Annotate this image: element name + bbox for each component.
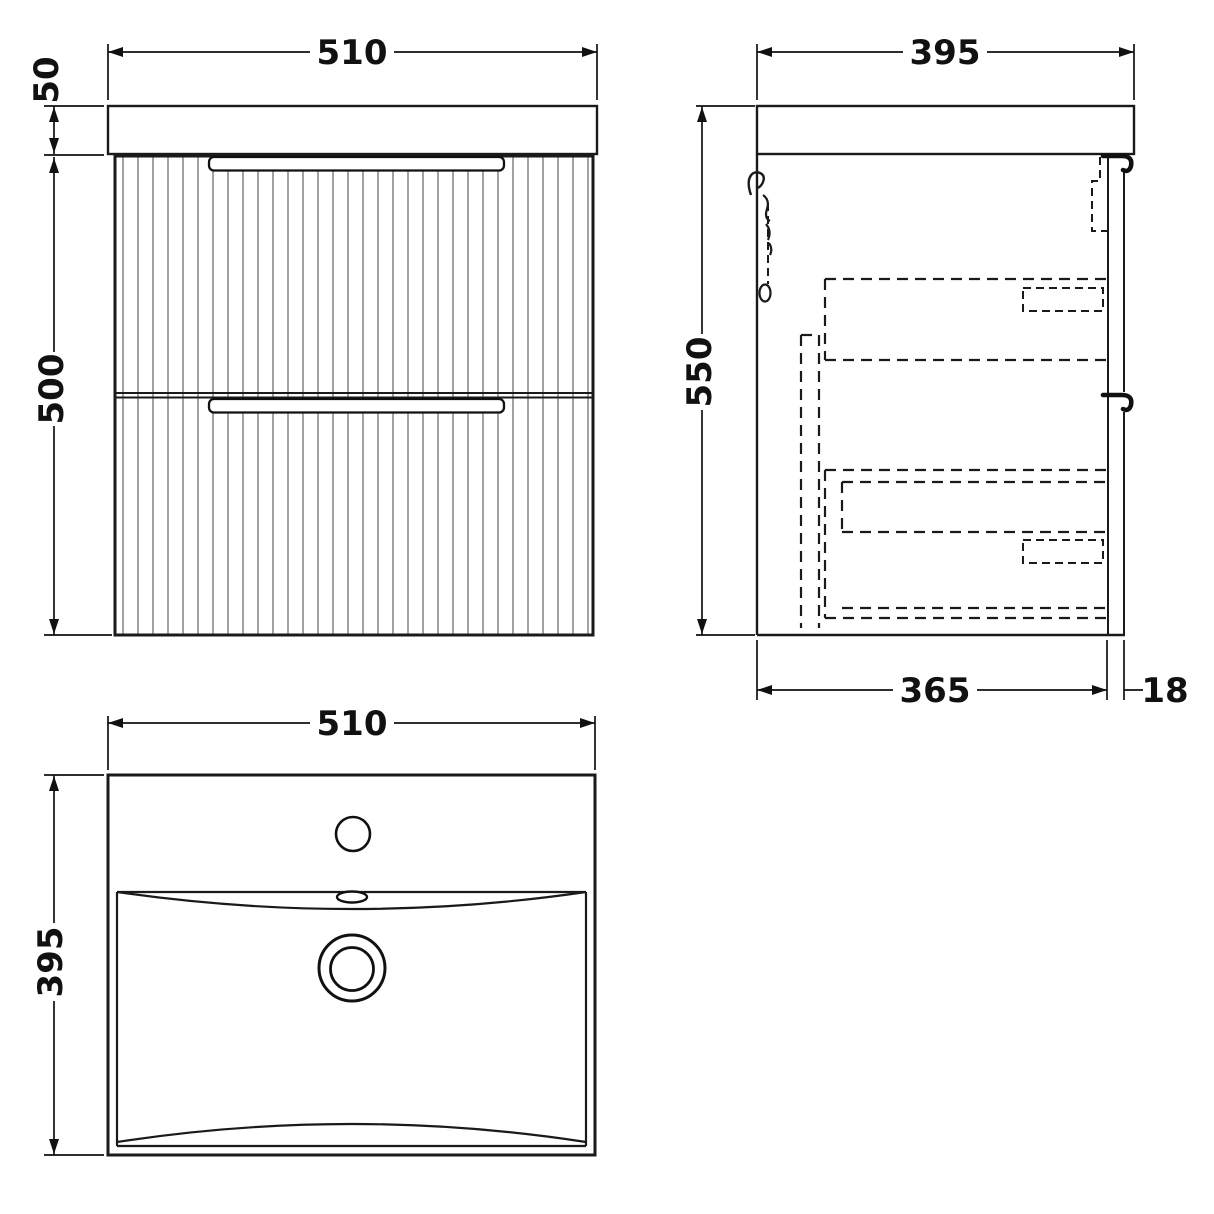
dim-side-height: 550 [680,106,755,635]
front-elevation-view: 510 50 500 [27,33,597,635]
arrowhead [582,47,597,57]
arrowhead [697,107,707,122]
dim-label-side-depth: 365 [900,671,971,711]
dim-label-side-width: 395 [910,33,981,73]
arrowhead [49,1139,59,1154]
wall-bracket-detail [749,172,772,301]
lower-drawer-hidden-box [825,470,1108,618]
technical-drawing-page: 510 50 500 [0,0,1214,1214]
hidden-back-rail-strip [801,335,819,628]
arrowhead [108,47,123,57]
arrowhead [49,107,59,122]
arrowhead [1119,47,1134,57]
tap-hole [336,817,370,851]
countertop-front [108,106,597,154]
bottom-drawer-handle [209,399,504,413]
dim-label-cabinet-height: 500 [32,354,72,425]
waste-outlet [319,935,385,1001]
arrowhead [49,776,59,791]
dim-label-countertop-height: 50 [27,56,67,103]
top-drawer-handle [209,157,504,171]
arrowhead [697,619,707,634]
dim-label-plan-width: 510 [317,704,388,744]
overflow-slot [337,892,367,903]
bowl-front-curve [117,1124,586,1142]
dim-label-front-thickness: 18 [1141,671,1188,711]
arrowhead [757,685,772,695]
arrowhead [49,619,59,634]
lower-handle-recess-hidden [1023,540,1103,563]
dim-front-width: 510 [108,33,597,100]
arrowhead [757,47,772,57]
countertop-side [757,106,1134,154]
dim-plan-width: 510 [108,704,595,770]
arrowhead [580,718,595,728]
dim-side-width: 395 [757,33,1134,100]
dim-plan-depth: 395 [31,775,104,1155]
vanity-technical-drawing: 510 50 500 [0,0,1214,1214]
dim-front-countertop-height: 50 [27,56,104,155]
fluted-cabinet-texture [115,156,593,635]
dim-front-cabinet-height: 500 [32,157,112,635]
dim-side-depth: 365 [757,640,1107,711]
waste-inner-ring [331,948,374,991]
arrowhead [1092,685,1107,695]
basin-bowl-outline [117,892,586,1146]
dim-label-front-width: 510 [317,33,388,73]
upper-handle-recess-hidden [1023,288,1103,311]
dim-label-side-height: 550 [680,337,720,408]
arrowhead [49,138,59,153]
dim-front-thickness: 18 [1124,640,1189,711]
dim-label-plan-depth: 395 [31,927,71,998]
bracket-adjuster-slot [760,285,771,302]
side-section-view: 395 550 [680,33,1189,711]
arrowhead [49,158,59,173]
arrowhead [108,718,123,728]
basin-plan-view: 510 395 [31,704,595,1155]
upper-drawer-hidden-box [825,279,1108,360]
handle-recess-hidden-edge [1092,157,1107,231]
